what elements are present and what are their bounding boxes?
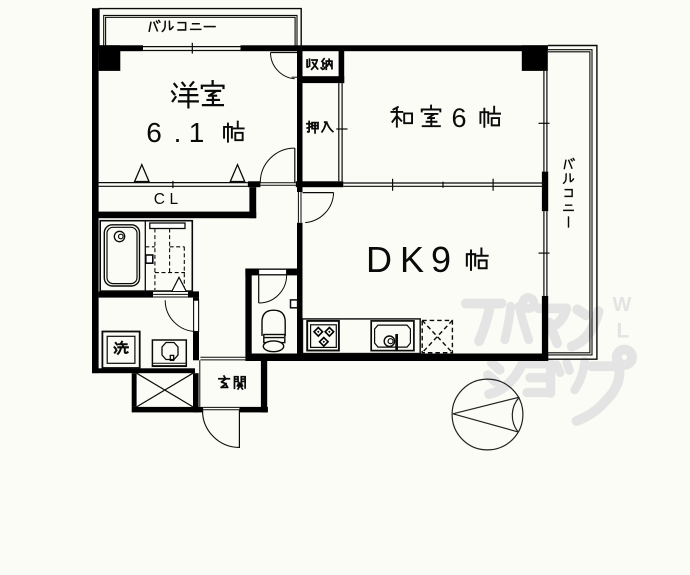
svg-text:L: L (617, 320, 630, 343)
svg-text:6: 6 (146, 117, 162, 148)
svg-text:9: 9 (431, 239, 451, 280)
svg-text:W: W (613, 294, 632, 316)
svg-text:D: D (366, 239, 392, 280)
svg-text:CL: CL (154, 191, 183, 208)
svg-text:K: K (400, 239, 424, 280)
svg-text:6: 6 (451, 103, 466, 133)
svg-text:1: 1 (189, 117, 205, 148)
svg-text:.: . (174, 117, 182, 148)
